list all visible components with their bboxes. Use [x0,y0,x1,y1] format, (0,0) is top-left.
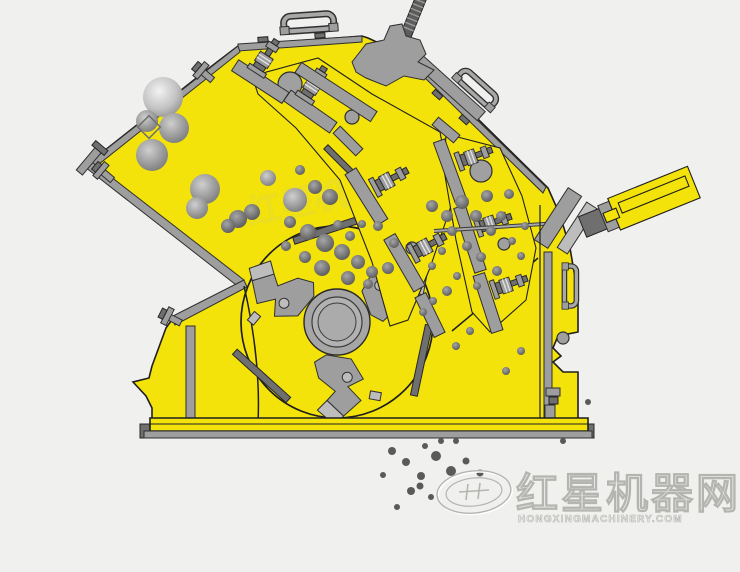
screenshot-canvas: 红星机器网 [0,0,740,572]
lid-tab [315,33,325,39]
wall-hole [557,332,569,344]
base-plate [144,431,592,438]
lid-handle [279,13,338,35]
bracket-body [352,24,434,86]
rotor-hub [304,289,370,355]
base-frame [140,418,594,438]
impact-crusher-illustration: 红星机器网 [0,0,740,572]
watermark-url-text: HONGXINGMACHINERY.COM [518,514,683,525]
lid-tab [258,37,268,43]
cylinder-body [576,166,700,242]
left-wall-liner [186,326,195,420]
watermark-brand-text: 红星机器网 [516,469,740,518]
watermark-logo [435,467,514,518]
